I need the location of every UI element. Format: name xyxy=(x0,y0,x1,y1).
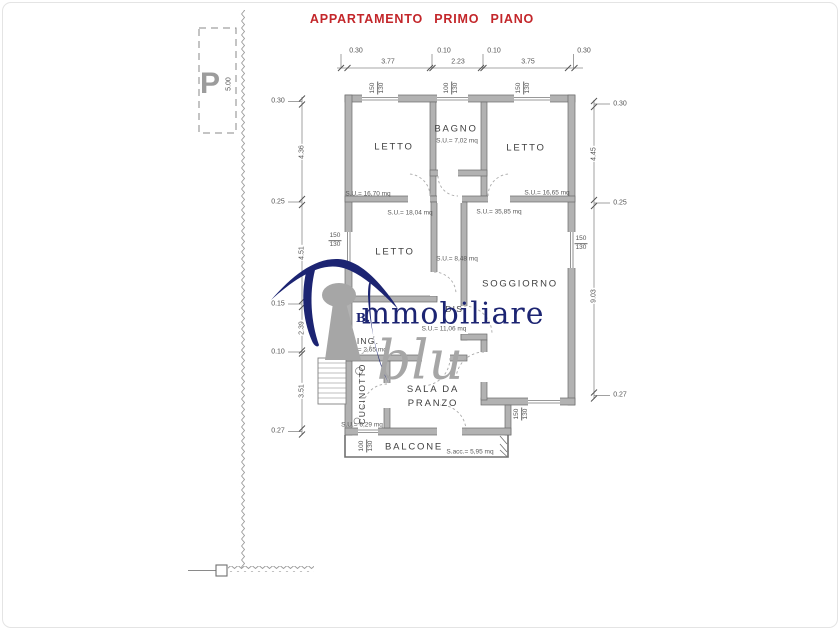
watermark-lamp xyxy=(322,283,361,360)
watermark-graphics xyxy=(0,0,840,630)
floorplan-canvas: APPARTAMENTO PRIMO PIANO P 5.00 LETTO S.… xyxy=(0,0,840,630)
